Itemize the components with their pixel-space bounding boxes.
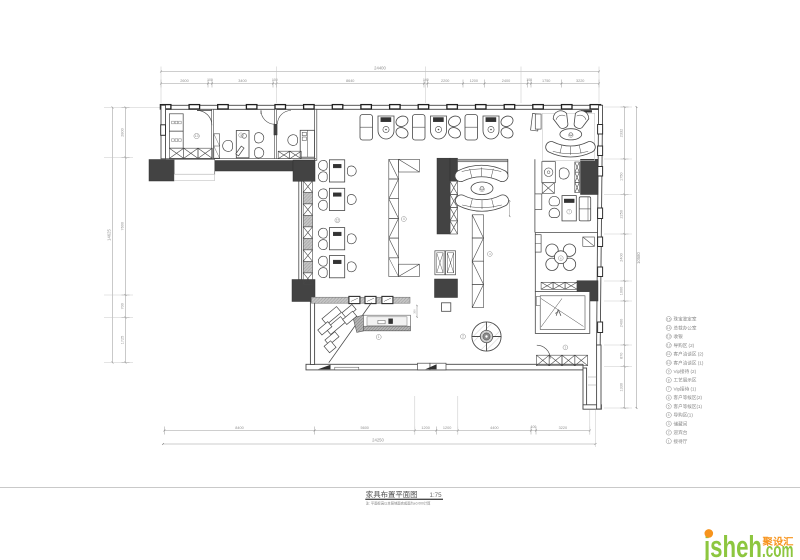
svg-text:2200: 2200 bbox=[441, 79, 449, 83]
svg-text:2400: 2400 bbox=[620, 319, 624, 327]
svg-text:1200: 1200 bbox=[443, 426, 451, 430]
svg-text:100: 100 bbox=[272, 78, 278, 82]
svg-text:2800: 2800 bbox=[121, 128, 125, 136]
svg-text:注: 平面标高以本层地面完成面为±0.000计算: 注: 平面标高以本层地面完成面为±0.000计算 bbox=[366, 501, 431, 506]
svg-text:13: 13 bbox=[195, 134, 199, 138]
svg-text:3: 3 bbox=[668, 422, 670, 426]
svg-text:1: 1 bbox=[668, 439, 670, 443]
svg-text:3220: 3220 bbox=[576, 79, 584, 83]
svg-text:Vip接待 (2): Vip接待 (2) bbox=[674, 368, 697, 375]
svg-text:聚设汇: 聚设汇 bbox=[761, 536, 794, 548]
svg-text:14625: 14625 bbox=[107, 229, 112, 241]
svg-text:100: 100 bbox=[207, 78, 213, 82]
svg-text:1750: 1750 bbox=[620, 173, 624, 181]
svg-text:15: 15 bbox=[239, 133, 243, 137]
svg-text:2: 2 bbox=[462, 335, 464, 339]
svg-text:12: 12 bbox=[336, 219, 340, 223]
svg-text:总裁办公室: 总裁办公室 bbox=[674, 324, 697, 331]
svg-text:导购区(1): 导购区(1) bbox=[674, 412, 694, 419]
svg-text:1000: 1000 bbox=[620, 287, 624, 295]
svg-text:8640: 8640 bbox=[346, 79, 354, 83]
svg-text:5: 5 bbox=[668, 405, 670, 409]
svg-text:9: 9 bbox=[668, 370, 670, 374]
svg-text:15: 15 bbox=[667, 317, 671, 321]
svg-text:300: 300 bbox=[413, 309, 417, 314]
svg-text:8400: 8400 bbox=[235, 426, 243, 430]
svg-text:1:75: 1:75 bbox=[430, 492, 443, 499]
svg-text:1200: 1200 bbox=[470, 79, 478, 83]
svg-text:100: 100 bbox=[531, 425, 537, 429]
svg-text:客户等候区(2): 客户等候区(2) bbox=[674, 394, 703, 401]
svg-text:4: 4 bbox=[668, 413, 670, 417]
svg-text:1: 1 bbox=[378, 335, 380, 339]
svg-text:5600: 5600 bbox=[360, 426, 368, 430]
svg-text:1330: 1330 bbox=[620, 383, 624, 391]
svg-text:2400: 2400 bbox=[502, 79, 510, 83]
svg-text:迎宾台: 迎宾台 bbox=[674, 429, 688, 436]
svg-text:客户等候区(1): 客户等候区(1) bbox=[674, 403, 703, 410]
svg-text:24250: 24250 bbox=[372, 438, 384, 443]
svg-text:客户洽谈区 (1): 客户洽谈区 (1) bbox=[674, 359, 704, 366]
svg-text:3220: 3220 bbox=[559, 426, 567, 430]
svg-text:家具布置平面图: 家具布置平面图 bbox=[366, 490, 418, 499]
svg-text:收银: 收银 bbox=[674, 333, 684, 340]
svg-text:1725: 1725 bbox=[121, 336, 125, 344]
svg-text:24400: 24400 bbox=[374, 65, 386, 70]
svg-text:8: 8 bbox=[668, 378, 670, 382]
svg-text:2332: 2332 bbox=[620, 129, 624, 137]
svg-text:2400: 2400 bbox=[620, 253, 624, 261]
svg-text:10580: 10580 bbox=[636, 252, 641, 264]
svg-text:1750: 1750 bbox=[542, 79, 550, 83]
svg-text:7600: 7600 bbox=[121, 222, 125, 230]
svg-text:10: 10 bbox=[667, 361, 671, 365]
svg-text:13: 13 bbox=[667, 335, 671, 339]
svg-text:6: 6 bbox=[668, 396, 670, 400]
svg-text:100: 100 bbox=[526, 78, 532, 82]
svg-text:870: 870 bbox=[620, 353, 624, 359]
svg-text:1200: 1200 bbox=[421, 426, 429, 430]
svg-text:14: 14 bbox=[667, 326, 671, 330]
svg-text:11: 11 bbox=[667, 352, 671, 356]
svg-text:导购区 (2): 导购区 (2) bbox=[674, 342, 695, 349]
svg-text:珠宝鉴定室: 珠宝鉴定室 bbox=[674, 316, 697, 323]
svg-text:接待厅: 接待厅 bbox=[674, 438, 688, 445]
svg-text:4: 4 bbox=[403, 217, 405, 221]
svg-text:2600: 2600 bbox=[180, 79, 188, 83]
svg-text:Vip接待 (1): Vip接待 (1) bbox=[674, 386, 697, 393]
svg-text:客户洽谈区 (2): 客户洽谈区 (2) bbox=[674, 351, 704, 358]
svg-text:7: 7 bbox=[668, 387, 670, 391]
svg-text:12: 12 bbox=[667, 344, 671, 348]
svg-text:4400: 4400 bbox=[490, 426, 498, 430]
svg-text:700: 700 bbox=[121, 303, 125, 309]
svg-text:2250: 2250 bbox=[620, 210, 624, 218]
svg-text:3400: 3400 bbox=[238, 79, 246, 83]
svg-text:储藏间: 储藏间 bbox=[674, 420, 688, 427]
svg-text:2: 2 bbox=[668, 431, 670, 435]
